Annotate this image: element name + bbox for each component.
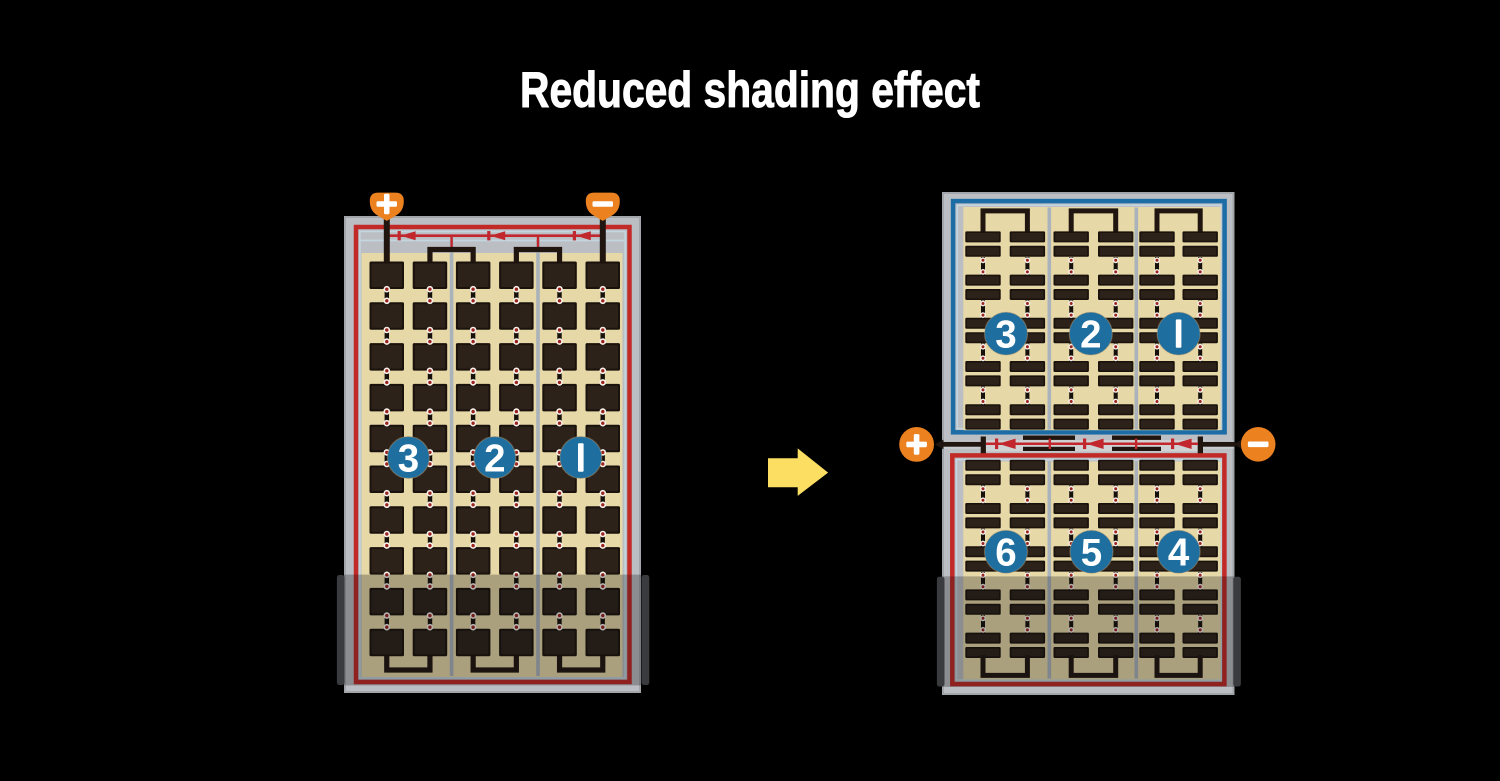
svg-text:2: 2 xyxy=(1080,314,1101,357)
svg-text:4: 4 xyxy=(1168,532,1190,575)
svg-text:5: 5 xyxy=(1081,532,1102,575)
svg-text:2: 2 xyxy=(484,437,505,480)
svg-text:3: 3 xyxy=(398,437,419,480)
svg-text:3: 3 xyxy=(995,314,1016,357)
svg-text:6: 6 xyxy=(995,532,1016,575)
svg-text:Reduced shading effect: Reduced shading effect xyxy=(520,62,980,118)
